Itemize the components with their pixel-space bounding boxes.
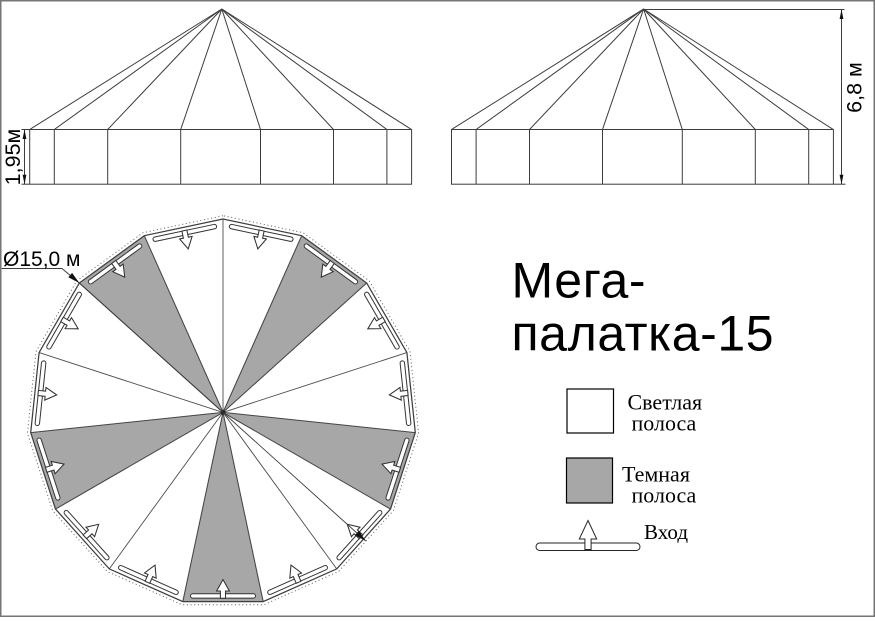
svg-text:Мега-: Мега- xyxy=(512,253,647,309)
svg-text:полоса: полоса xyxy=(632,483,697,508)
svg-text:6,8 м: 6,8 м xyxy=(843,62,867,113)
svg-text:1,95м: 1,95м xyxy=(1,129,25,186)
svg-text:Вход: Вход xyxy=(644,520,688,544)
svg-text:Ø15,0 м: Ø15,0 м xyxy=(3,248,80,271)
svg-text:палатка-15: палатка-15 xyxy=(512,306,775,362)
svg-text:полоса: полоса xyxy=(632,411,697,436)
